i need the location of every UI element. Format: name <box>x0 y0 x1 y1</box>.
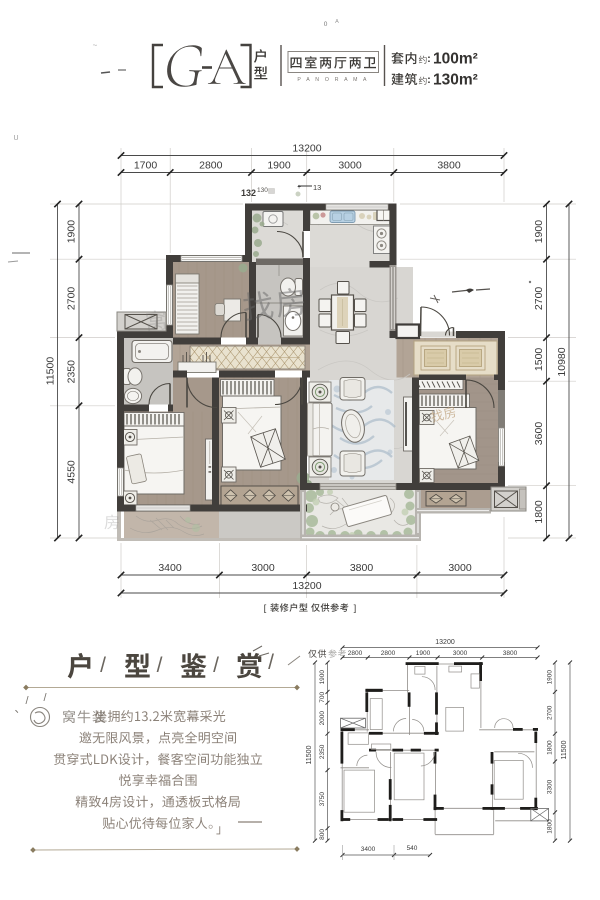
svg-text:3400: 3400 <box>158 562 182 574</box>
svg-text:2800: 2800 <box>199 160 223 172</box>
svg-text:1900: 1900 <box>547 670 554 685</box>
svg-text:2000: 2000 <box>319 711 326 726</box>
svg-text:3750: 3750 <box>319 792 326 807</box>
svg-text:13200: 13200 <box>292 143 321 155</box>
svg-text:」: 」 <box>216 822 228 836</box>
svg-text:700: 700 <box>319 691 326 702</box>
svg-text:1900: 1900 <box>66 220 78 244</box>
svg-text:/: / <box>268 651 274 674</box>
svg-text:1800: 1800 <box>533 500 545 524</box>
svg-text:2700: 2700 <box>66 287 78 311</box>
svg-text::: : <box>427 53 431 65</box>
svg-text:11500: 11500 <box>561 740 568 759</box>
svg-text:2800: 2800 <box>381 650 396 657</box>
svg-text:3600: 3600 <box>533 422 545 446</box>
svg-text:]: ] <box>354 603 357 614</box>
svg-text:11500: 11500 <box>306 745 313 764</box>
svg-text:2800: 2800 <box>348 650 363 657</box>
svg-text:3000: 3000 <box>338 160 362 172</box>
svg-text:1700: 1700 <box>134 160 158 172</box>
svg-text:11500: 11500 <box>45 357 57 386</box>
svg-text:1900: 1900 <box>416 650 431 657</box>
svg-text:/: / <box>100 654 106 677</box>
svg-text:1500: 1500 <box>533 348 545 372</box>
svg-text:2700: 2700 <box>547 705 554 720</box>
svg-text:3300: 3300 <box>547 779 554 794</box>
svg-text::: : <box>427 74 431 86</box>
svg-text:100m²: 100m² <box>433 51 478 68</box>
svg-text:3000: 3000 <box>251 562 275 574</box>
svg-text:3800: 3800 <box>350 562 374 574</box>
svg-text:3400: 3400 <box>361 846 376 853</box>
svg-text:1900: 1900 <box>319 670 326 685</box>
svg-text:4550: 4550 <box>66 460 78 484</box>
svg-text:130: 130 <box>257 187 268 194</box>
svg-text:540: 540 <box>407 845 418 852</box>
svg-text:~: ~ <box>93 41 98 50</box>
svg-text:13200: 13200 <box>435 639 455 646</box>
svg-text:/: / <box>157 654 163 677</box>
svg-text:/: / <box>213 654 219 677</box>
svg-text:A: A <box>335 19 339 25</box>
svg-text:1800: 1800 <box>547 819 554 834</box>
svg-text:+: + <box>297 184 301 191</box>
svg-text:U: U <box>13 135 18 142</box>
svg-text:[: [ <box>264 603 267 614</box>
svg-text:1900: 1900 <box>533 220 545 244</box>
svg-text:13200: 13200 <box>292 580 321 592</box>
svg-text:10980: 10980 <box>556 347 568 376</box>
svg-text:800: 800 <box>319 829 326 840</box>
svg-text:1800: 1800 <box>547 740 554 755</box>
svg-text:3800: 3800 <box>503 650 518 657</box>
svg-text:130m²: 130m² <box>433 72 478 89</box>
svg-text:13: 13 <box>313 183 321 192</box>
svg-text:、: 、 <box>15 703 26 715</box>
svg-text:2700: 2700 <box>533 287 545 311</box>
svg-text:1900: 1900 <box>267 160 291 172</box>
svg-text:2350: 2350 <box>319 744 326 759</box>
svg-text:3000: 3000 <box>453 650 468 657</box>
svg-text:0: 0 <box>324 21 328 28</box>
svg-text:3000: 3000 <box>448 562 472 574</box>
svg-text:132: 132 <box>241 188 256 198</box>
svg-text:2350: 2350 <box>66 360 78 384</box>
svg-text:P A N O R A M A: P A N O R A M A <box>297 77 368 83</box>
svg-text:3800: 3800 <box>437 160 461 172</box>
